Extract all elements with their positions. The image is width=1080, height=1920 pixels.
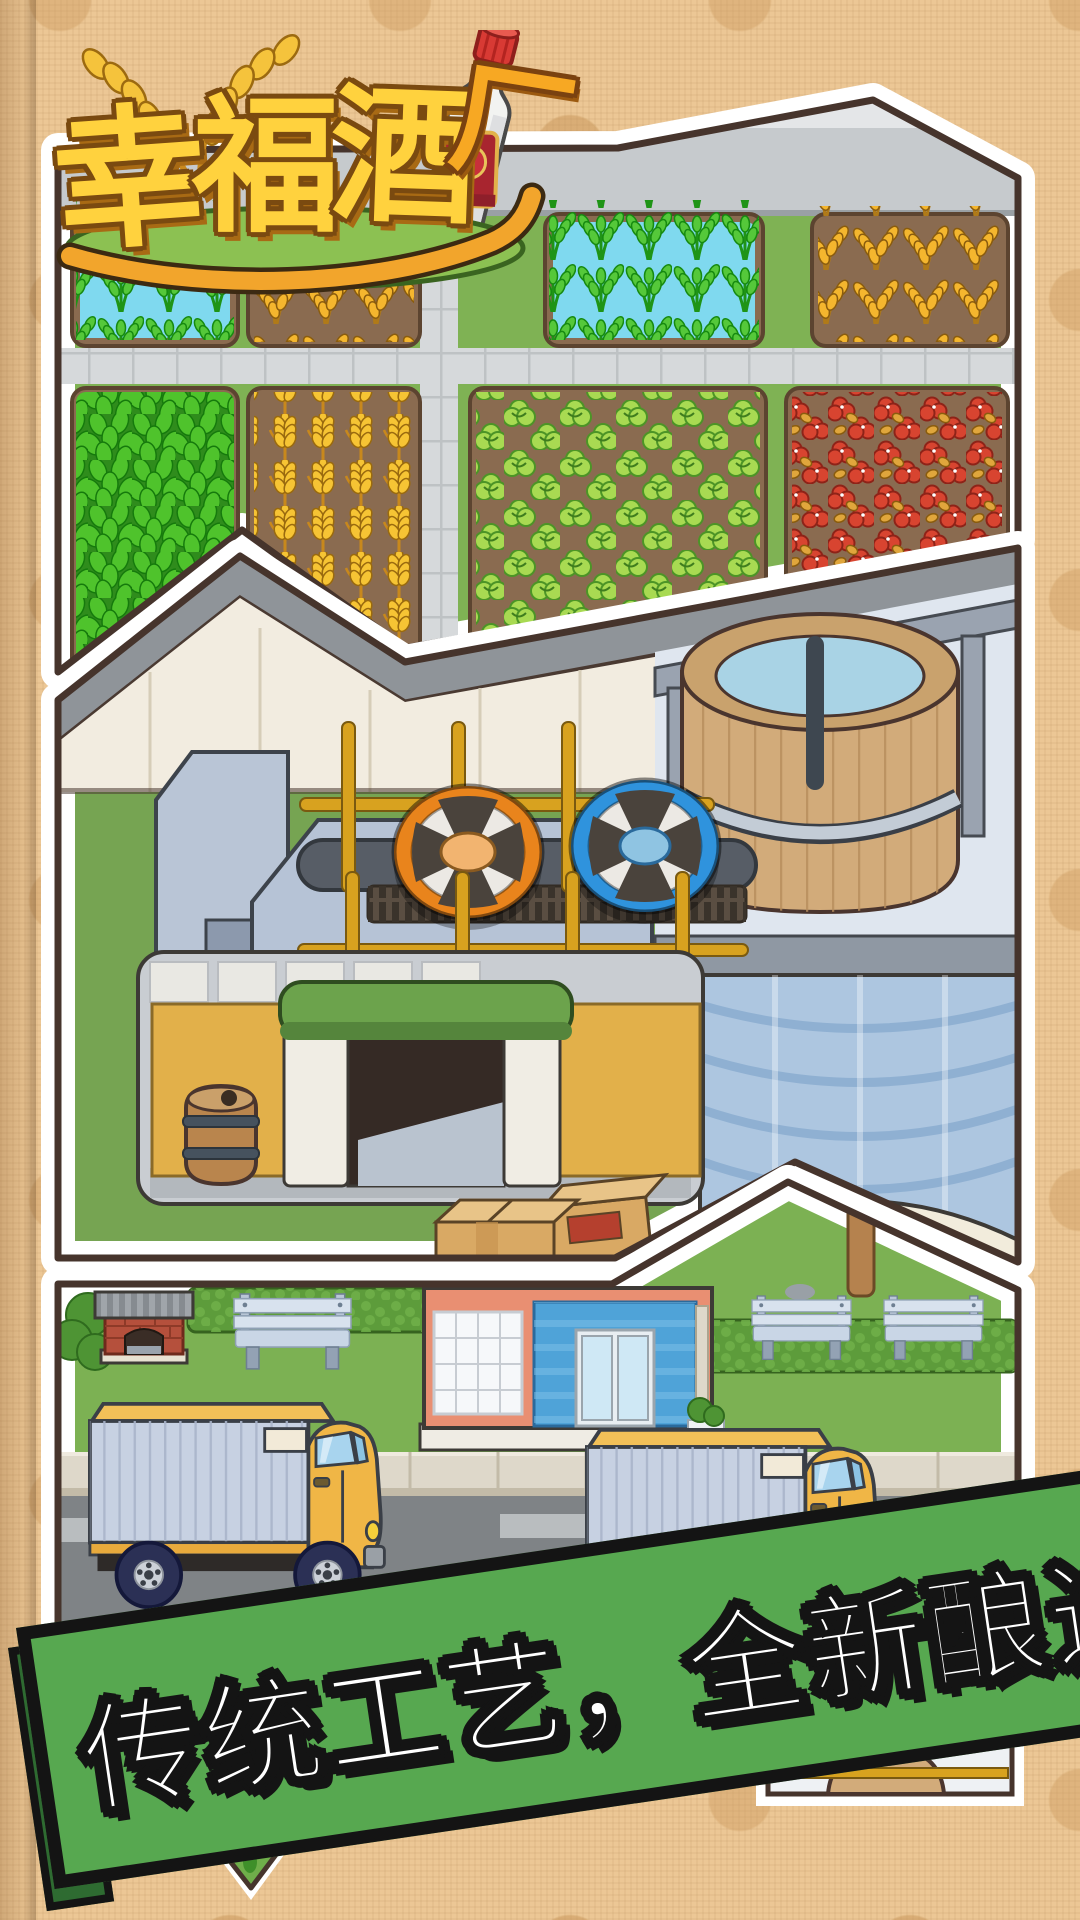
yellow-wall-right [560,1004,700,1176]
logo-char-2: 福 [192,94,340,242]
wooden-barrel [183,1086,259,1184]
storefront [420,1288,724,1452]
golden-rice-plot-2 [812,206,1008,346]
logo-char-4: 厂 [443,55,583,195]
logo-char-1: 幸 [49,99,211,261]
factory-panel [58,548,1018,1284]
factory-building [138,952,703,1204]
dog-house [95,1292,193,1363]
rock [785,1284,815,1300]
promo-screenshot: 幸 福 酒 厂 传统工艺，全新酿造 [0,0,1080,1920]
stir-rod [806,636,824,790]
game-logo: 幸 福 酒 厂 [40,30,620,320]
